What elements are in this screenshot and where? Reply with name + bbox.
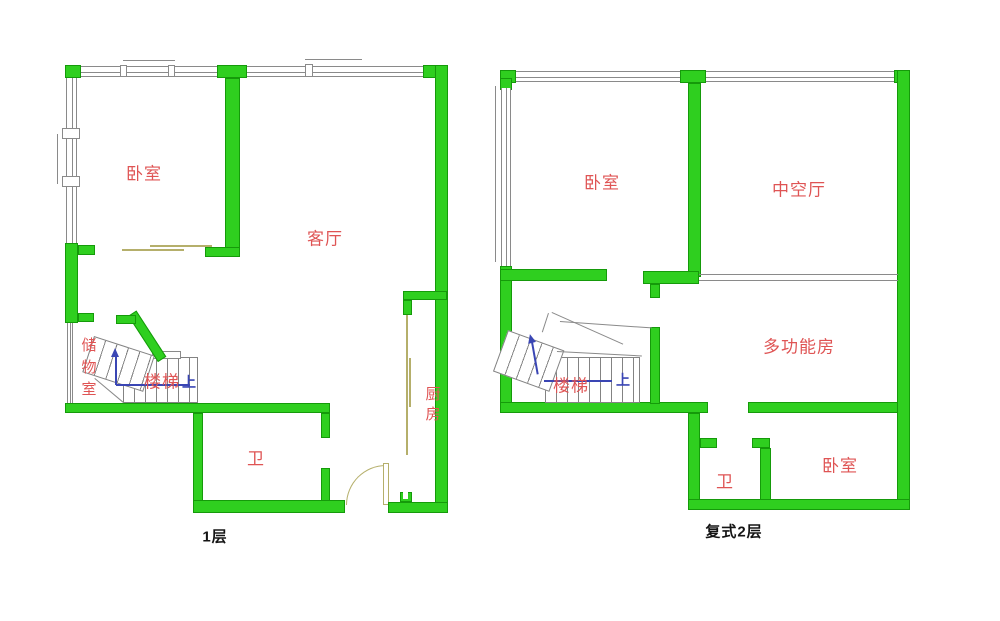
wall-divider-cap bbox=[205, 247, 240, 257]
wall-right bbox=[435, 65, 448, 513]
wall-bath-bottom bbox=[193, 500, 345, 513]
kitchen-sliding-door bbox=[409, 358, 411, 407]
window bbox=[247, 66, 305, 77]
window bbox=[81, 66, 217, 77]
wall-bottom-left bbox=[65, 403, 330, 413]
wall-mid bbox=[748, 402, 898, 413]
floor1-caption: 1层 bbox=[202, 526, 227, 547]
storage-thin-wall bbox=[67, 323, 73, 403]
room-label-multi: 多功能房 bbox=[763, 333, 835, 358]
window-mullion bbox=[62, 128, 80, 139]
window-divider bbox=[305, 64, 313, 77]
room-label-storage: 储物室 bbox=[80, 335, 99, 401]
wall-below-bedroom bbox=[500, 269, 607, 281]
wall-bath-left bbox=[688, 413, 700, 510]
window bbox=[516, 71, 680, 82]
stairs-railing bbox=[542, 313, 549, 332]
sliding-door bbox=[150, 245, 212, 247]
wall-notch bbox=[403, 492, 408, 499]
room-label-bedroom: 卧室 bbox=[126, 160, 162, 185]
balcony-line bbox=[57, 134, 58, 184]
window-divider bbox=[168, 65, 175, 77]
wall-stub bbox=[78, 313, 94, 322]
window-mullion bbox=[62, 176, 80, 187]
room-label-bathroom: 卫 bbox=[716, 468, 734, 493]
overhang-line bbox=[305, 59, 362, 60]
door-swing-arc bbox=[346, 465, 386, 505]
wall-mid bbox=[500, 402, 708, 413]
kitchen-sliding-door bbox=[406, 315, 408, 455]
wall-stub bbox=[78, 245, 95, 255]
wall-kitchen-stub bbox=[403, 291, 447, 300]
window bbox=[706, 71, 894, 82]
window bbox=[313, 66, 423, 77]
room-label-stairs: 楼梯 bbox=[144, 368, 180, 393]
up-arrow-line bbox=[115, 356, 117, 385]
wall-bottom bbox=[688, 499, 910, 510]
room-label-kitchen: 厨房 bbox=[424, 385, 443, 425]
wall-corner-tl bbox=[65, 65, 81, 78]
wall-stairs-right bbox=[650, 327, 660, 404]
void-boundary-line bbox=[699, 274, 898, 275]
room-label-void-hall: 中空厅 bbox=[772, 176, 826, 201]
window-divider bbox=[120, 65, 127, 77]
wall-kitchen-stub bbox=[403, 300, 412, 315]
wall-t-junction bbox=[680, 70, 706, 83]
wall-bedroom-divider bbox=[688, 83, 701, 277]
wall-left bbox=[65, 243, 78, 323]
room-label-bathroom: 卫 bbox=[247, 445, 265, 470]
window bbox=[66, 78, 77, 243]
room-label-living: 客厅 bbox=[307, 225, 343, 250]
floor2-caption: 复式2层 bbox=[705, 521, 762, 542]
stairs-railing bbox=[557, 351, 642, 356]
sliding-door bbox=[122, 249, 184, 251]
wall-bottom-right bbox=[388, 502, 448, 513]
wall-bedroom-divider bbox=[225, 78, 240, 257]
overhang-line bbox=[123, 60, 175, 61]
wall-bath-stub bbox=[700, 438, 717, 448]
door-leaf bbox=[383, 463, 389, 505]
wall-bath-left bbox=[193, 413, 203, 510]
wall-stub-down bbox=[650, 284, 660, 298]
window bbox=[501, 88, 511, 266]
wall-t-junction bbox=[217, 65, 247, 78]
balcony-line bbox=[495, 86, 496, 262]
room-label-stairs: 楼梯 bbox=[553, 372, 589, 397]
wall-bath-right bbox=[321, 413, 330, 438]
room-label-bedroom-bottom: 卧室 bbox=[822, 452, 858, 477]
wall-below-bedroom bbox=[643, 271, 699, 284]
wall-right bbox=[897, 70, 910, 510]
up-label: 上 bbox=[616, 370, 630, 390]
wall-stairs-nub bbox=[116, 315, 136, 324]
stairs-railing bbox=[552, 312, 624, 345]
void-boundary-line bbox=[699, 280, 898, 281]
floorplan-canvas: 卧室 客厅 厨房 卫 储物室 楼梯 上 1层 bbox=[0, 0, 1000, 621]
wall-bath-stub bbox=[752, 438, 770, 448]
up-label: 上 bbox=[182, 372, 196, 392]
room-label-bedroom-top: 卧室 bbox=[584, 169, 620, 194]
